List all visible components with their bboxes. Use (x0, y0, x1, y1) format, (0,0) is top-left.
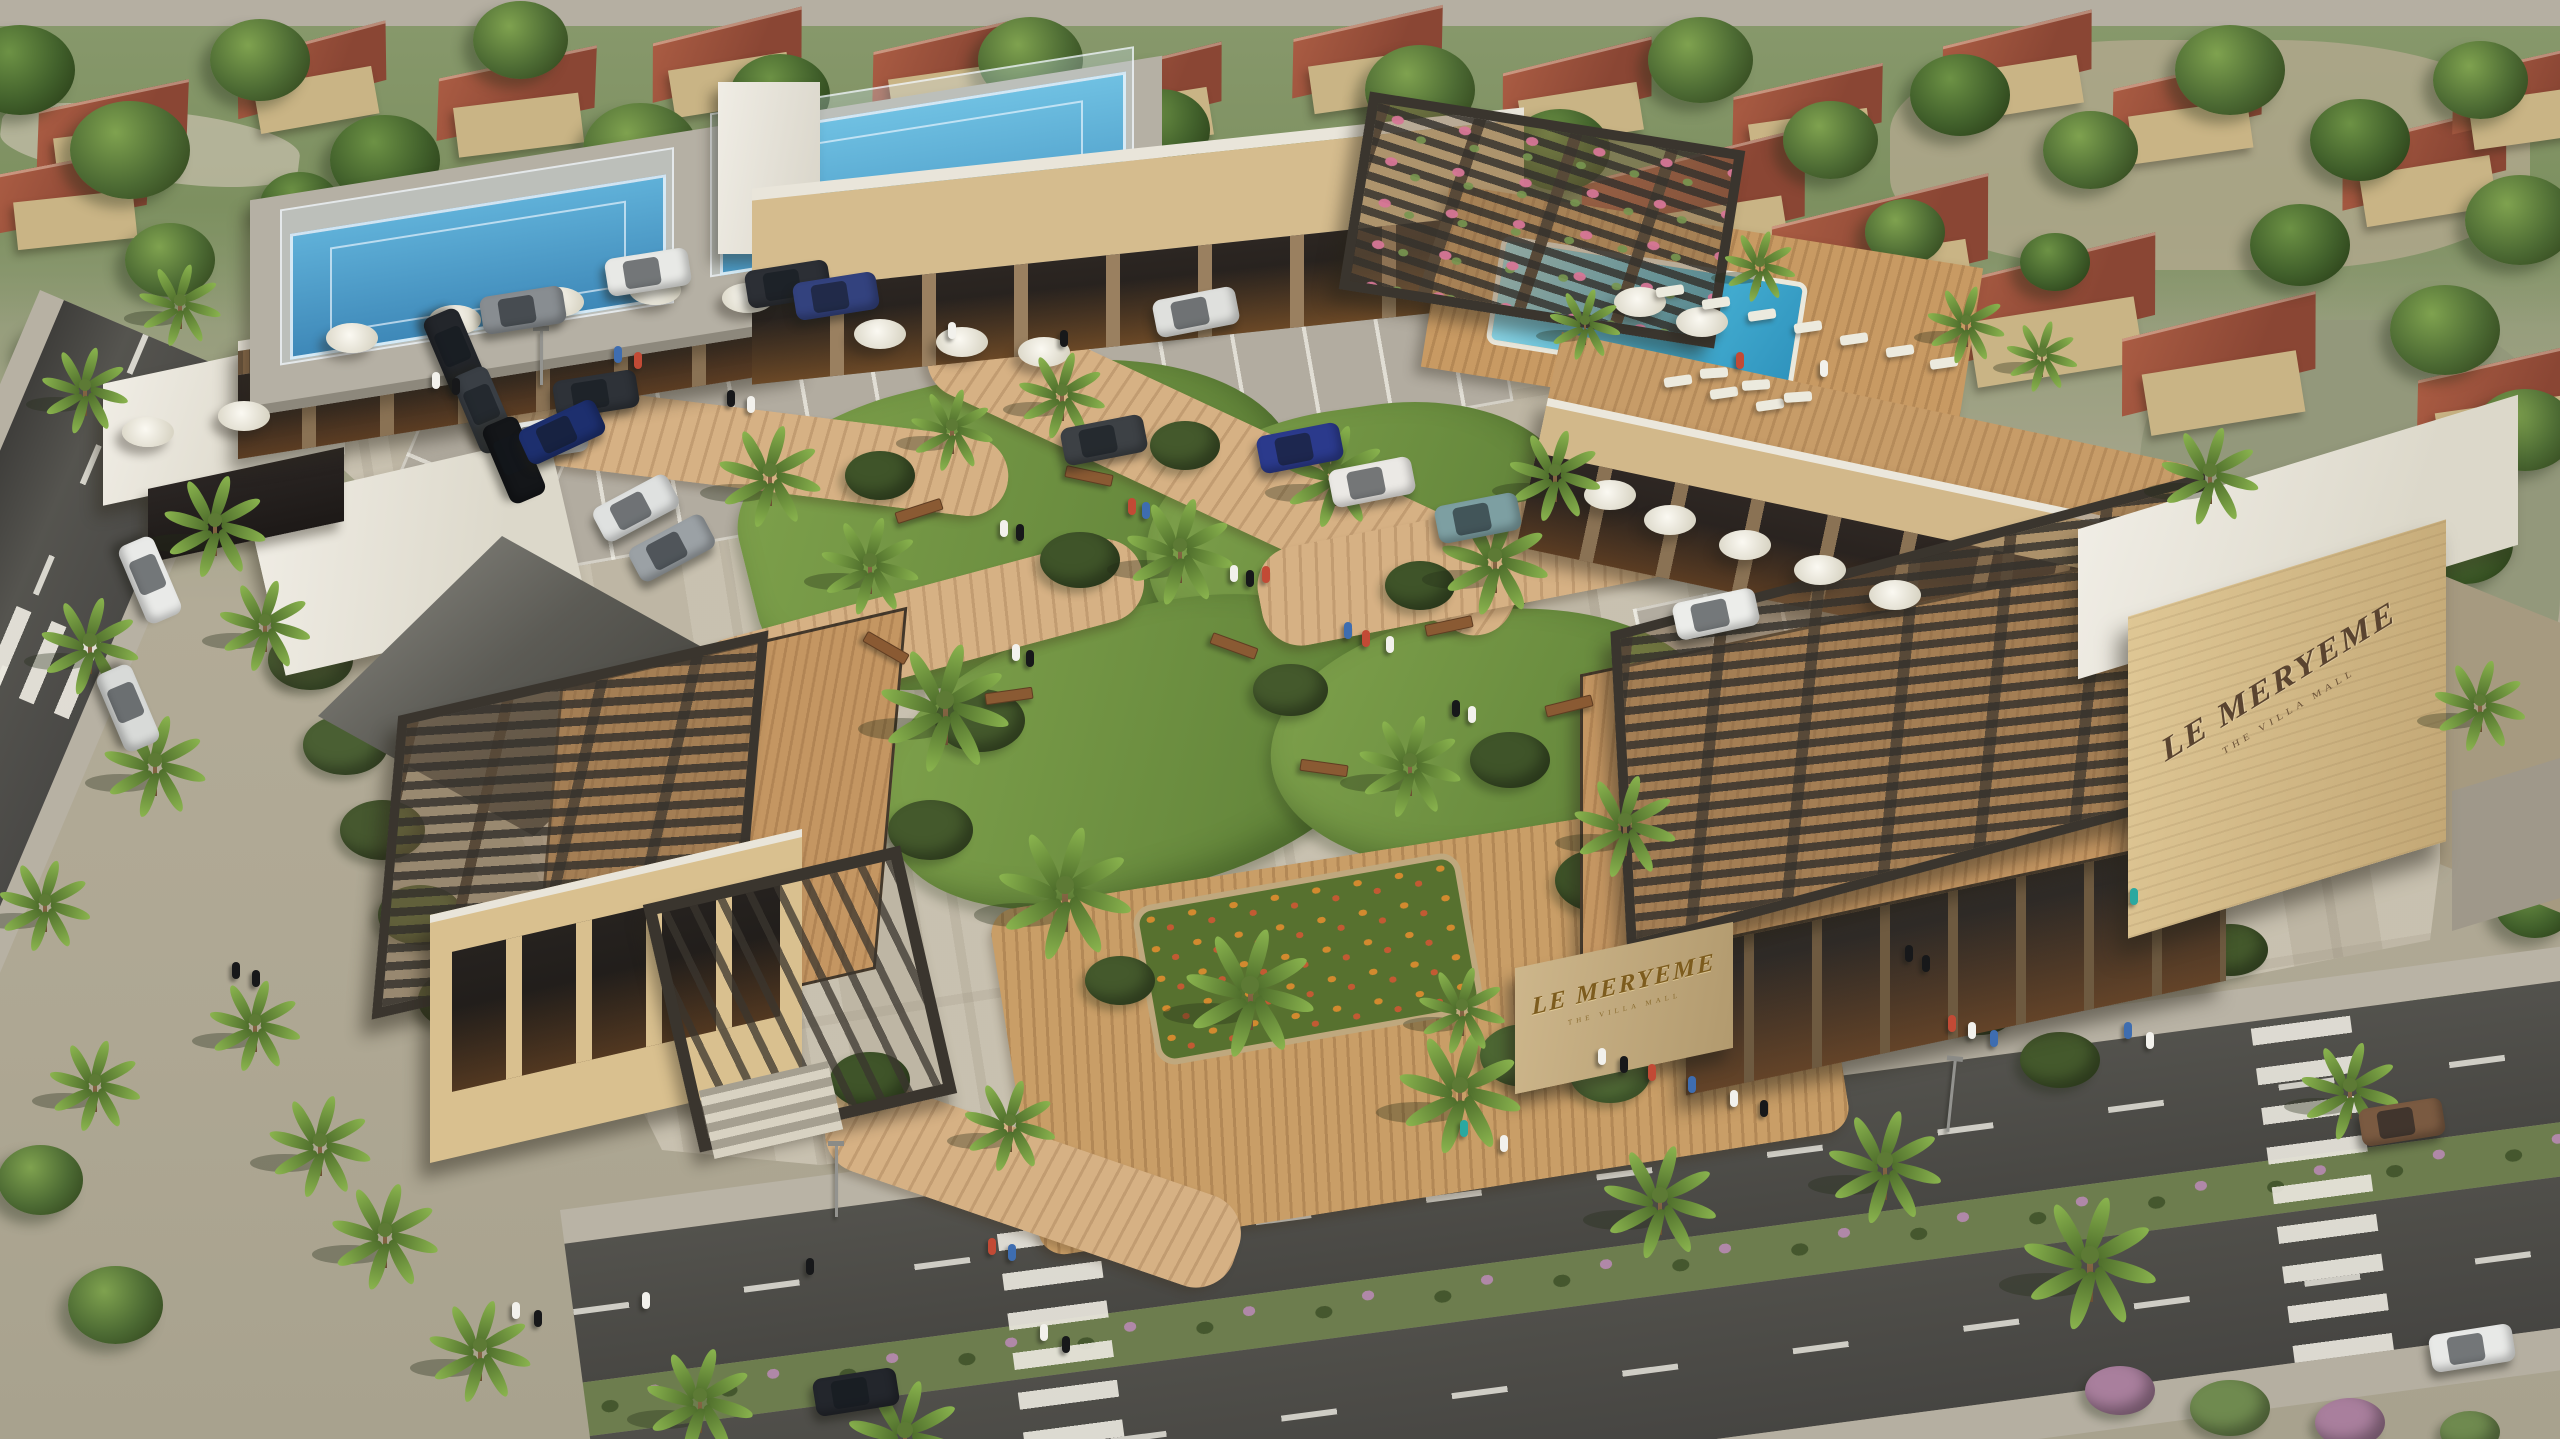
person (512, 1302, 520, 1319)
pool-lounger (1784, 391, 1813, 403)
person (252, 970, 260, 987)
tree (2433, 41, 2528, 119)
palm-crown (79, 379, 91, 391)
person (1730, 1090, 1738, 1107)
person (1230, 565, 1238, 582)
person (1760, 1100, 1768, 1117)
person (1620, 1056, 1628, 1073)
patio-umbrella (218, 401, 270, 431)
person (1016, 524, 1024, 541)
bush (2020, 1032, 2100, 1088)
anchor-sign-title: LE MERYEME (2139, 584, 2418, 781)
palm-crown (863, 553, 876, 566)
palm-crown (2081, 1246, 2099, 1264)
palm-crown (83, 633, 96, 646)
person (1062, 1336, 1070, 1353)
tree (70, 101, 190, 199)
palm-crown (1618, 813, 1632, 827)
palm-crown (2037, 347, 2047, 357)
bush (1150, 421, 1220, 470)
person (432, 372, 440, 389)
person (1000, 520, 1008, 537)
palm-crown (1056, 384, 1068, 396)
person (1142, 502, 1150, 519)
person (1026, 650, 1034, 667)
palm-crown (1755, 257, 1765, 267)
tree (473, 1, 568, 79)
person (2146, 1032, 2154, 1049)
patio-umbrella (1794, 555, 1846, 585)
palm-crown (2203, 463, 2216, 476)
palm-crown (313, 1133, 327, 1147)
bush (1040, 532, 1120, 588)
palm-crown (259, 614, 272, 627)
person (2130, 888, 2138, 905)
person (1460, 1120, 1468, 1137)
patio-umbrella (854, 319, 906, 349)
palm-crown (1580, 315, 1590, 325)
person (1736, 352, 1744, 369)
person (1500, 1135, 1508, 1152)
patio-umbrella (1676, 307, 1728, 337)
palm-crown (1652, 1187, 1667, 1202)
palm-crown (763, 463, 777, 477)
palm-crown (1403, 753, 1417, 767)
person (1040, 1324, 1048, 1341)
person (634, 352, 642, 369)
person (1452, 700, 1460, 717)
patio-umbrella (1644, 505, 1696, 535)
palm-crown (148, 753, 162, 767)
person (1990, 1030, 1998, 1047)
palm-crown (946, 419, 957, 430)
tree (2175, 25, 2285, 115)
person (806, 1258, 814, 1275)
person (1246, 570, 1254, 587)
bush (1253, 664, 1328, 717)
person (1128, 498, 1136, 515)
patio-umbrella (936, 327, 988, 357)
person (2124, 1022, 2132, 1039)
bush (845, 451, 915, 500)
person (1386, 636, 1394, 653)
person (948, 322, 956, 339)
person (534, 1310, 542, 1327)
aerial-render-scene: LE MERYEME THE VILLA MALL LE MERYEME THE… (0, 0, 2560, 1439)
person (642, 1292, 650, 1309)
palm-crown (39, 894, 52, 907)
person (1820, 360, 1828, 377)
palm-crown (897, 1422, 912, 1437)
patio-umbrella (1719, 530, 1771, 560)
palm-crown (1056, 876, 1074, 894)
person (452, 378, 460, 395)
tree (2043, 111, 2138, 189)
person (747, 396, 755, 413)
person (1922, 955, 1930, 972)
palm-crown (473, 1338, 487, 1352)
anchor-building-sign: LE MERYEME THE VILLA MALL (2139, 584, 2424, 799)
palm-crown (1456, 999, 1468, 1011)
person (1688, 1076, 1696, 1093)
palm-crown (249, 1014, 262, 1027)
tree (210, 19, 310, 101)
palm-crown (1241, 976, 1259, 994)
bush (2440, 1411, 2500, 1439)
patio-umbrella (1869, 580, 1921, 610)
tree (2310, 99, 2410, 181)
bush (2085, 1366, 2155, 1415)
person (1948, 1015, 1956, 1032)
person (1344, 622, 1352, 639)
person (988, 1238, 996, 1255)
palm-crown (174, 294, 185, 305)
person (1598, 1048, 1606, 1065)
palm-crown (378, 1223, 393, 1238)
person (1060, 330, 1068, 347)
palm-crown (936, 691, 954, 709)
bush (1470, 732, 1550, 788)
bush (2315, 1398, 2385, 1439)
person (614, 346, 622, 363)
palm-crown (1877, 1152, 1892, 1167)
patio-umbrella (122, 417, 174, 447)
tree (68, 1266, 163, 1344)
person (1008, 1244, 1016, 1261)
tree (1648, 17, 1753, 103)
person (1012, 644, 1020, 661)
pool-lounger (1742, 379, 1771, 391)
person (232, 962, 240, 979)
person (727, 390, 735, 407)
pool-lounger (1700, 367, 1729, 379)
person (1968, 1022, 1976, 1039)
tree (2020, 233, 2090, 290)
tree (1783, 101, 1878, 179)
bush (2190, 1380, 2270, 1436)
tree (1910, 54, 2010, 136)
person (1905, 945, 1913, 962)
bush (1085, 956, 1155, 1005)
person (1362, 630, 1370, 647)
street-light (540, 330, 543, 385)
person (1468, 706, 1476, 723)
palm-crown (89, 1074, 102, 1087)
tree (2250, 204, 2350, 286)
palm-crown (208, 513, 222, 527)
palm-crown (2343, 1078, 2356, 1091)
street-light (835, 1145, 838, 1217)
patio-umbrella (326, 323, 378, 353)
tree (0, 1145, 83, 1215)
person (1262, 566, 1270, 583)
person (1648, 1064, 1656, 1081)
anchor-sign-tagline: THE VILLA MALL (2154, 625, 2425, 798)
tree (2390, 285, 2500, 375)
